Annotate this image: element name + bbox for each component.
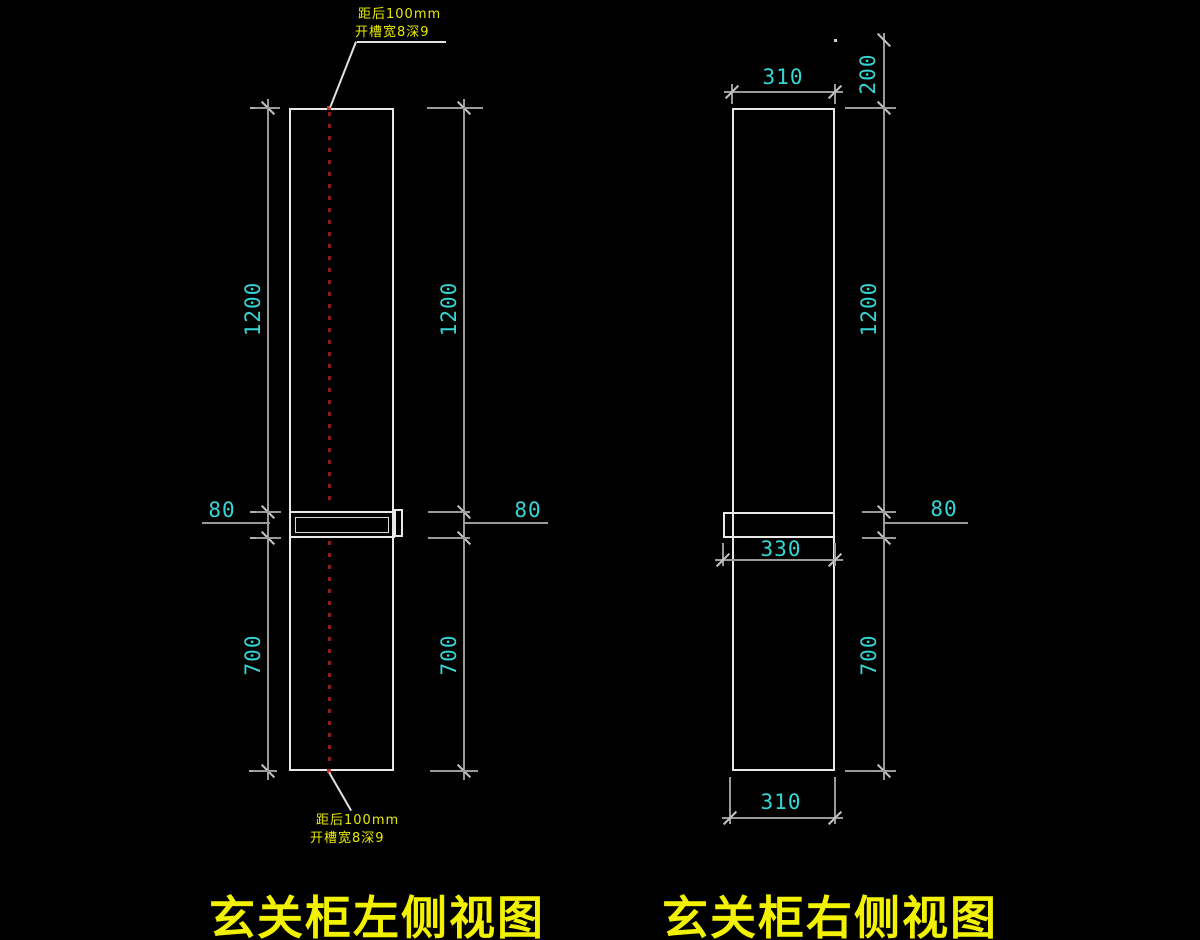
- groove-centerline-upper: [328, 112, 331, 508]
- dim-text-underline: [884, 522, 968, 524]
- dim-text-underline: [464, 522, 548, 524]
- dim-label-shelf-depth: 330: [751, 538, 811, 560]
- extension-line: [845, 770, 896, 772]
- right-shelf-band: [723, 512, 835, 538]
- left-dimension-line: [267, 99, 269, 780]
- dim-label-lower-height: 700: [438, 620, 460, 690]
- extension-line: [862, 537, 896, 539]
- extension-line: [256, 537, 281, 539]
- dim-label-upper-height: 1200: [858, 274, 880, 344]
- left-cabinet-outline: [289, 108, 394, 771]
- right-dimension-line: [883, 33, 885, 780]
- groove-annotation-top-line2: 开槽宽8深9: [355, 21, 430, 40]
- dim-label-top-offset: 200: [857, 39, 879, 109]
- extension-line: [834, 543, 836, 566]
- top-depth-dimension-line: [724, 91, 843, 93]
- dim-label-upper-height: 1200: [438, 274, 460, 344]
- extension-line: [862, 511, 896, 513]
- bottom-depth-dimension-line: [722, 817, 843, 819]
- groove-annotation-bottom-line1: 距后100mm: [316, 809, 399, 828]
- left-view-caption: 玄关柜左侧视图: [187, 882, 567, 940]
- shelf-depth-dimension-line: [715, 559, 843, 561]
- extension-line: [722, 543, 724, 566]
- dim-label-lower-height: 700: [858, 620, 880, 690]
- extension-line: [430, 770, 478, 772]
- dim-label-shelf-height: 80: [924, 498, 964, 520]
- dim-label-top-depth: 310: [753, 66, 813, 88]
- right-view-caption: 玄关柜右侧视图: [640, 882, 1020, 940]
- extension-line: [253, 770, 277, 772]
- groove-annotation-top-line1: 距后100mm: [358, 3, 441, 22]
- left-view-right-dimension-line: [463, 99, 465, 780]
- left-shelf-front-lip: [394, 509, 403, 537]
- left-shelf-inner: [295, 517, 389, 533]
- annotation-leader-line: [328, 772, 352, 811]
- annotation-leader-line: [329, 41, 357, 108]
- groove-centerline-lower: [328, 541, 331, 768]
- dim-text-underline: [202, 522, 270, 524]
- reference-point: [834, 39, 837, 42]
- annotation-underline: [357, 41, 446, 43]
- dim-label-bottom-depth: 310: [751, 791, 811, 813]
- extension-line: [256, 511, 281, 513]
- extension-line: [427, 107, 483, 109]
- extension-line: [428, 511, 470, 513]
- extension-line: [428, 537, 470, 539]
- dim-label-shelf-height: 80: [508, 499, 548, 521]
- extension-line: [255, 107, 280, 109]
- cad-drawing-canvas: 1200 700 1200 700 80 80 距后100mm 开槽宽8深9 距…: [0, 0, 1200, 940]
- dim-label-upper-height: 1200: [242, 274, 264, 344]
- right-cabinet-outline: [732, 108, 835, 771]
- groove-annotation-bottom-line2: 开槽宽8深9: [310, 827, 385, 846]
- dim-label-lower-height: 700: [242, 620, 264, 690]
- dim-label-shelf-height: 80: [202, 499, 242, 521]
